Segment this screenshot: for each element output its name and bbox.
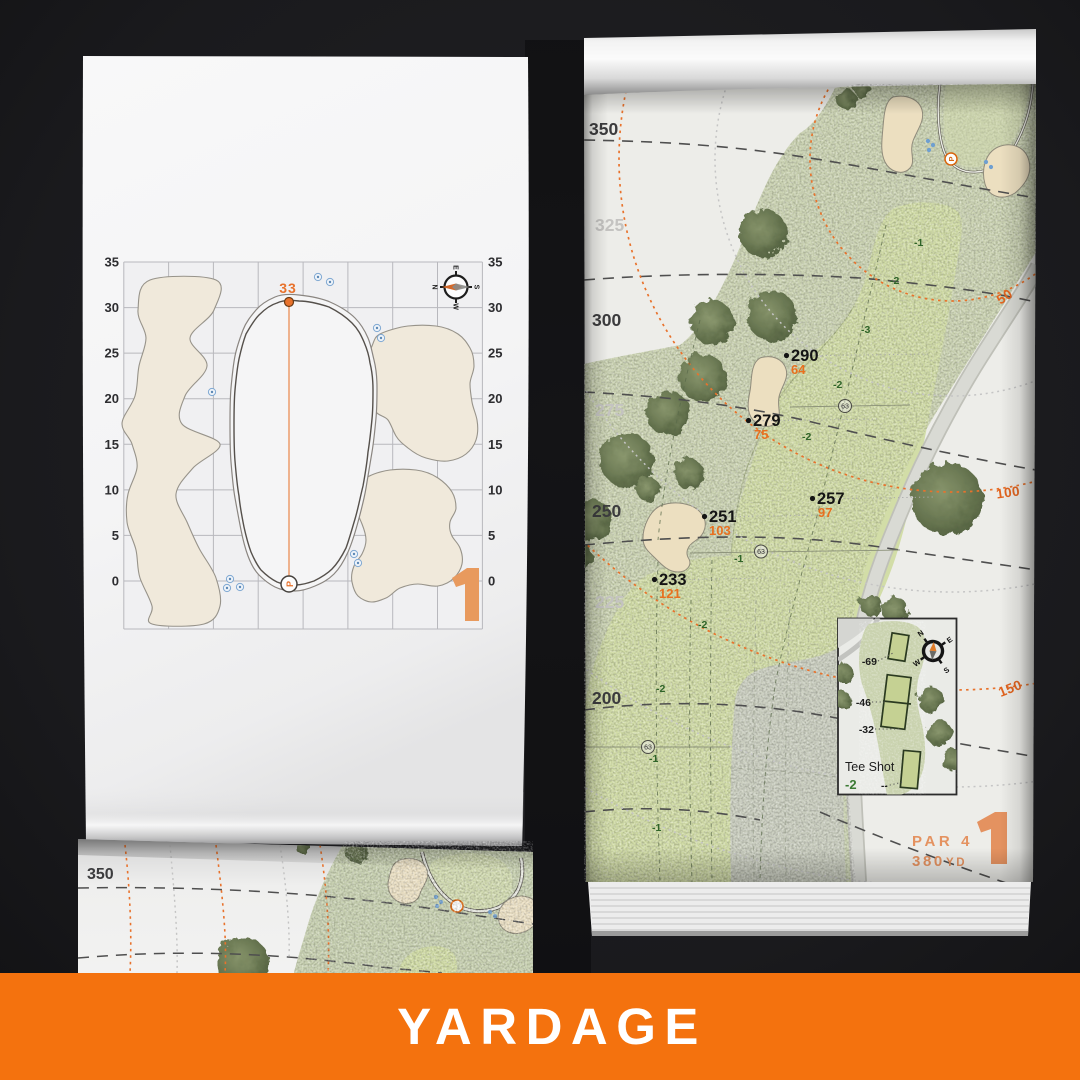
svg-text:-46: -46: [856, 697, 871, 709]
svg-text:75: 75: [754, 427, 768, 442]
svg-text:64: 64: [791, 362, 806, 377]
svg-text:350: 350: [87, 866, 114, 883]
svg-text:63: 63: [644, 745, 652, 752]
svg-text:-2: -2: [845, 777, 857, 792]
svg-text:-2: -2: [698, 619, 707, 631]
svg-text:30: 30: [105, 300, 119, 315]
svg-text:Tee Shot: Tee Shot: [845, 760, 895, 774]
svg-text:15: 15: [105, 437, 119, 452]
svg-text:-3: -3: [861, 324, 870, 336]
svg-text:S: S: [473, 285, 480, 290]
svg-text:121: 121: [659, 586, 681, 601]
svg-text:-32: -32: [859, 724, 874, 736]
svg-text:5: 5: [112, 528, 119, 543]
svg-text:-2: -2: [656, 683, 665, 695]
svg-text:10: 10: [105, 482, 119, 497]
svg-text:35: 35: [105, 255, 119, 270]
svg-text:0: 0: [112, 574, 119, 589]
svg-text:33: 33: [279, 280, 297, 296]
svg-text:25: 25: [105, 346, 119, 361]
svg-text:63: 63: [841, 404, 849, 411]
svg-text:-1: -1: [649, 753, 658, 765]
svg-text:P: P: [947, 156, 956, 161]
svg-text:-1: -1: [734, 553, 743, 565]
svg-text:-69: -69: [862, 656, 877, 668]
svg-text:97: 97: [818, 505, 832, 520]
svg-text:P: P: [285, 581, 295, 587]
svg-text:63: 63: [757, 549, 765, 556]
svg-text:10: 10: [488, 482, 502, 497]
svg-text:-1: -1: [652, 822, 661, 834]
svg-text:20: 20: [105, 391, 119, 406]
svg-text:30: 30: [488, 300, 502, 315]
svg-text:25: 25: [488, 346, 502, 361]
svg-text:E: E: [452, 265, 459, 270]
svg-text:15: 15: [488, 437, 502, 452]
svg-text:YARDAGE: YARDAGE: [397, 998, 707, 1055]
svg-text:-1: -1: [914, 237, 923, 249]
svg-text:35: 35: [488, 255, 502, 270]
svg-text:0: 0: [488, 574, 495, 589]
svg-text:-2: -2: [890, 275, 899, 287]
svg-text:5: 5: [488, 528, 495, 543]
svg-text:-2: -2: [833, 379, 842, 391]
svg-text:W: W: [452, 303, 459, 310]
svg-text:-2: -2: [802, 431, 811, 443]
svg-text:103: 103: [709, 523, 731, 538]
svg-text:--: --: [881, 781, 888, 792]
svg-text:PAR 4: PAR 4: [912, 833, 973, 850]
svg-text:20: 20: [488, 391, 502, 406]
svg-text:N: N: [431, 284, 438, 289]
